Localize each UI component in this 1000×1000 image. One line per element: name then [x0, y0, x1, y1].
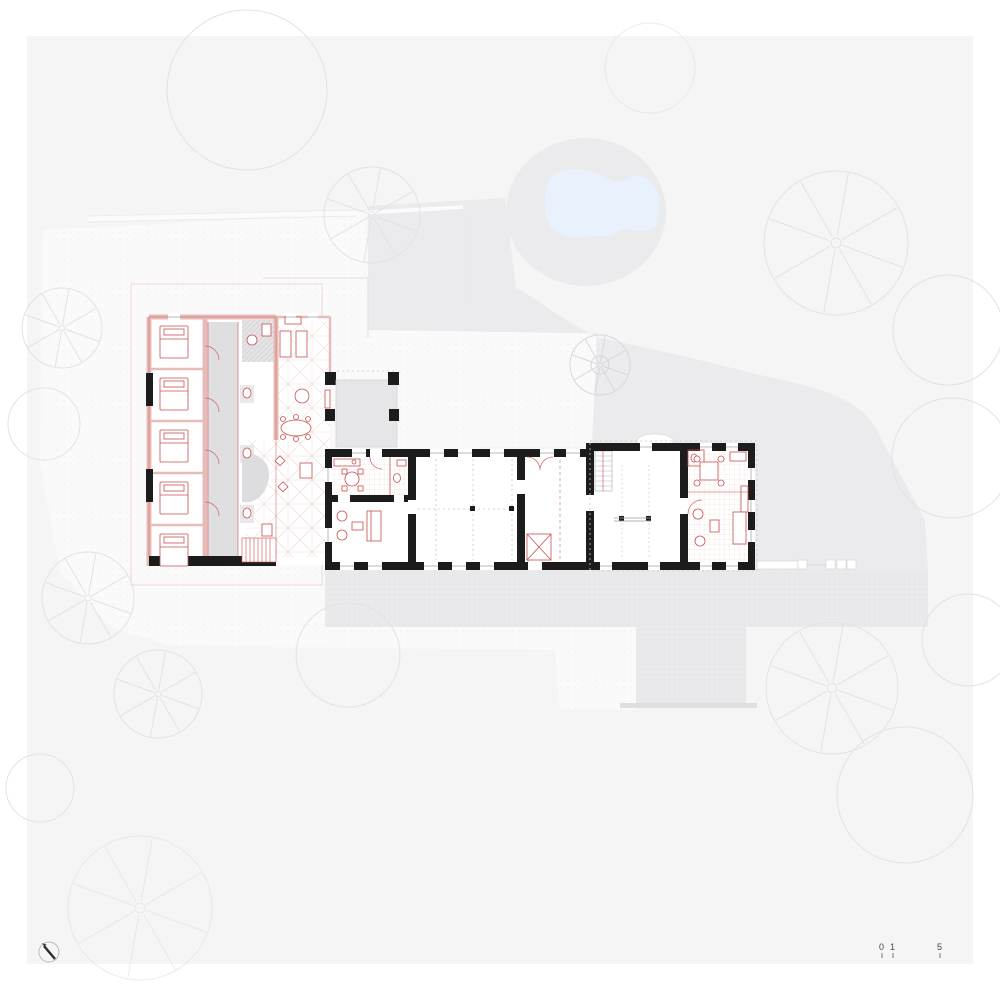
- armchair-icon: [693, 509, 703, 519]
- garden-wall: [757, 560, 856, 569]
- shelf-icon: [325, 390, 330, 408]
- seat-icon: [262, 524, 272, 536]
- sink-icon: [247, 335, 257, 345]
- plan-sheet: 0 1 5: [0, 0, 1000, 1000]
- wc-icon: [394, 474, 401, 483]
- column: [619, 516, 624, 521]
- chair-icon: [358, 469, 363, 474]
- bed-icon: [160, 430, 188, 462]
- porch-column: [325, 372, 336, 385]
- chair-icon: [342, 469, 347, 474]
- wc-icon: [243, 508, 251, 518]
- coffee-table-icon: [710, 520, 719, 532]
- column: [470, 506, 475, 511]
- paved-terrace: [325, 570, 928, 627]
- porch-column: [325, 409, 335, 421]
- pool: [545, 169, 660, 237]
- sofa-icon: [733, 512, 746, 544]
- armchair-icon: [300, 463, 312, 478]
- porch: [325, 371, 399, 447]
- chair-icon: [694, 456, 700, 462]
- column: [646, 516, 651, 521]
- column: [509, 506, 514, 511]
- chair-icon: [718, 456, 724, 462]
- sofa-icon: [296, 331, 307, 357]
- sink-icon: [397, 460, 406, 466]
- coffee-table-icon: [352, 522, 363, 530]
- garden-path: [620, 627, 757, 708]
- armchair-icon: [337, 530, 347, 540]
- chair-icon: [342, 486, 347, 491]
- sink-icon: [352, 460, 356, 464]
- dining-table-icon: [281, 420, 311, 436]
- porch-column: [389, 409, 399, 421]
- site-plan-svg: 0 1 5: [0, 0, 1000, 1000]
- bed-icon: [160, 482, 188, 514]
- sofa-icon: [280, 331, 291, 357]
- bed-icon: [160, 326, 188, 358]
- armchair-icon: [695, 536, 705, 546]
- counter-icon: [730, 452, 746, 461]
- armchair-icon: [337, 511, 347, 521]
- scale-label-1: 1: [890, 942, 895, 952]
- wardrobe-icon: [741, 486, 748, 512]
- round-table-icon: [295, 389, 309, 403]
- wc-icon: [243, 448, 251, 458]
- scale-label-0: 0: [879, 942, 884, 952]
- wc-icon: [262, 324, 271, 336]
- stair: [595, 451, 612, 491]
- scale-label-5: 5: [937, 942, 942, 952]
- chair-icon: [358, 486, 363, 491]
- chair-icon: [694, 480, 700, 486]
- chair-icon: [718, 480, 724, 486]
- left-wing: [146, 313, 336, 566]
- porch-column: [388, 372, 399, 385]
- sofa-icon: [367, 511, 381, 541]
- main-wing: [325, 434, 757, 571]
- corridor: [208, 322, 238, 558]
- stair: [242, 538, 276, 562]
- dining-table-icon: [700, 462, 718, 480]
- bed-icon: [160, 378, 188, 410]
- wc-icon: [243, 388, 251, 398]
- bed-icon: [160, 534, 188, 566]
